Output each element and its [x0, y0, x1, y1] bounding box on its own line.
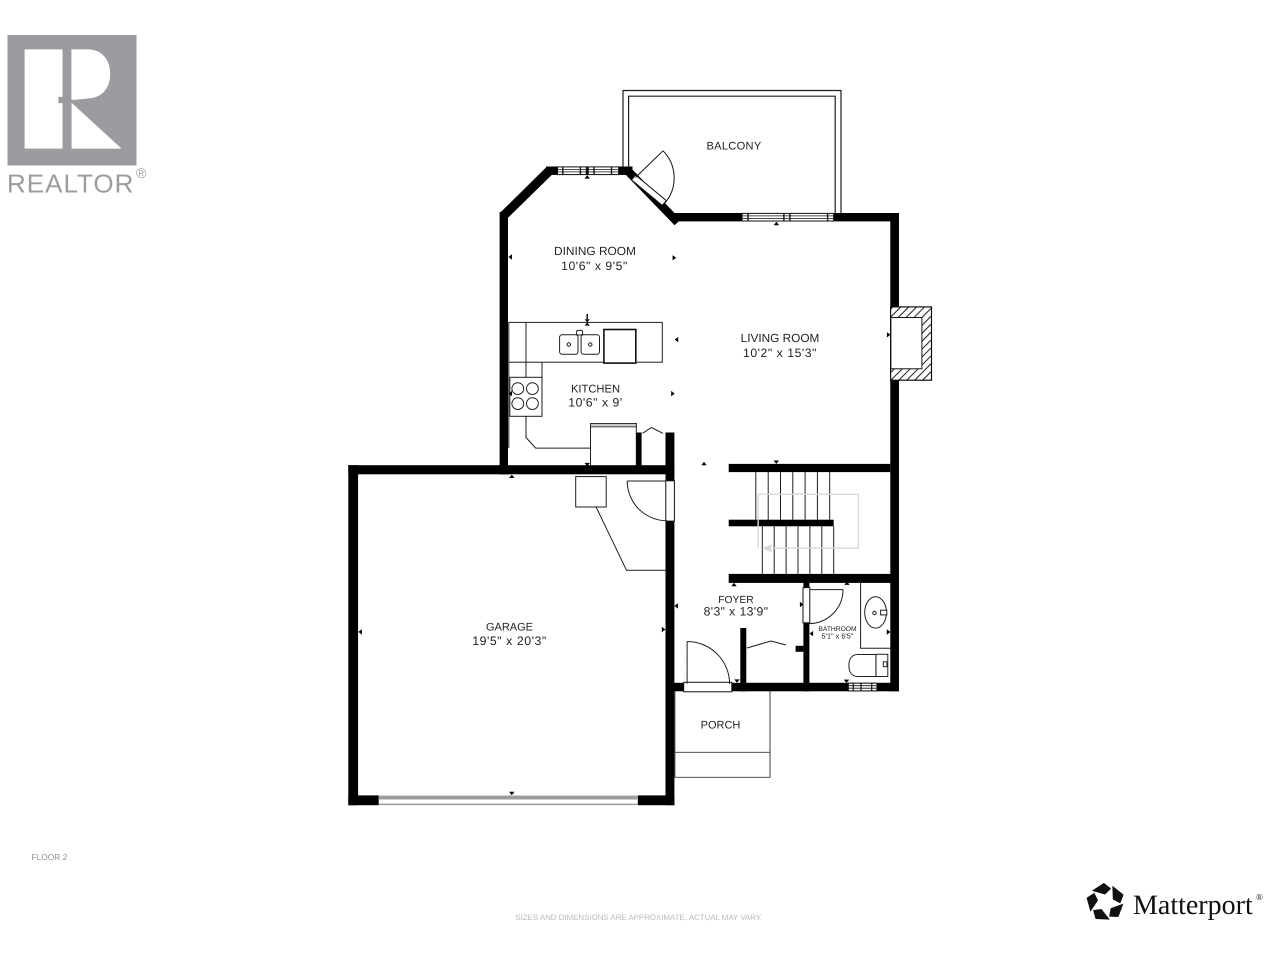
svg-text:BALCONY: BALCONY [706, 141, 761, 153]
svg-text:®: ® [1256, 892, 1263, 902]
svg-text:GARAGE: GARAGE [486, 621, 533, 633]
svg-text:PORCH: PORCH [701, 720, 741, 732]
svg-text:REALTOR: REALTOR [7, 168, 134, 198]
svg-text:10'2" x 15'3": 10'2" x 15'3" [743, 346, 817, 360]
svg-text:FLOOR 2: FLOOR 2 [32, 852, 68, 862]
svg-text:5'1" x 6'5": 5'1" x 6'5" [822, 632, 854, 641]
svg-text:KITCHEN: KITCHEN [571, 383, 620, 395]
svg-text:10'6" x 9'5": 10'6" x 9'5" [561, 259, 628, 273]
svg-text:19'5" x 20'3": 19'5" x 20'3" [472, 634, 547, 648]
svg-text:SIZES AND DIMENSIONS ARE APPRO: SIZES AND DIMENSIONS ARE APPROXIMATE, AC… [515, 913, 762, 922]
svg-text:LIVING ROOM: LIVING ROOM [741, 331, 820, 345]
svg-text:DINING ROOM: DINING ROOM [554, 244, 636, 258]
svg-text:8'3" x 13'9": 8'3" x 13'9" [704, 604, 769, 618]
svg-text:®: ® [136, 165, 147, 181]
svg-text:Matterport: Matterport [1133, 890, 1253, 921]
svg-text:10'6" x 9': 10'6" x 9' [568, 396, 622, 410]
